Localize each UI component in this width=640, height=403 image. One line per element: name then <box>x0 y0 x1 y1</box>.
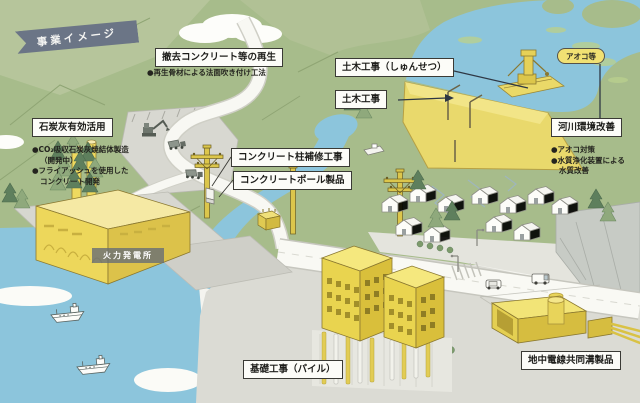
notes-river-environment: ●アオコ対策 ●水質浄化装置による 水質改善 <box>551 145 625 177</box>
label-concrete-pole-products: コンクリートポール製品 <box>233 171 352 190</box>
label-civil-work: 土木工事 <box>335 90 387 109</box>
label-thermal-power-plant: 火力発電所 <box>92 248 164 263</box>
business-illustration: 事業イメージ 撤去コンクリート等の再生 ●再生骨材による法面吹き付け工法 石炭灰… <box>0 0 640 403</box>
note-line: （開発中） <box>32 156 129 167</box>
label-demolition-concrete-recycling: 撤去コンクリート等の再生 <box>155 48 283 67</box>
label-algae-capsule: アオコ等 <box>557 48 605 64</box>
label-underground-duct-products: 地中電線共同溝製品 <box>521 351 621 370</box>
note-line: ●CO₂吸収石炭灰焼結体製造 <box>32 145 129 156</box>
label-river-environment: 河川環境改善 <box>551 118 622 137</box>
note-line: ●アオコ対策 <box>551 145 625 156</box>
label-coal-ash-utilization: 石炭灰有効活用 <box>32 118 113 137</box>
note-line: コンクリート開発 <box>32 177 129 188</box>
label-concrete-pole-repair: コンクリート柱補修工事 <box>231 148 350 167</box>
notes-coal-ash: ●CO₂吸収石炭灰焼結体製造 （開発中） ●フライアッシュを使用した コンクリー… <box>32 145 129 187</box>
car-icon <box>486 280 501 290</box>
manhole-icon <box>548 297 564 324</box>
truck-icon <box>206 188 214 204</box>
label-foundation-piles: 基礎工事（パイル） <box>243 360 343 379</box>
note-line: ●フライアッシュを使用した <box>32 166 129 177</box>
note-recycled-aggregate: ●再生骨材による法面吹き付け工法 <box>147 68 266 79</box>
note-line: 水質改善 <box>551 166 625 177</box>
illustration-canvas <box>0 0 640 403</box>
label-civil-work-dredging: 土木工事（しゅんせつ） <box>335 58 454 77</box>
note-line: ●水質浄化装置による <box>551 156 625 167</box>
van-icon <box>532 274 549 285</box>
